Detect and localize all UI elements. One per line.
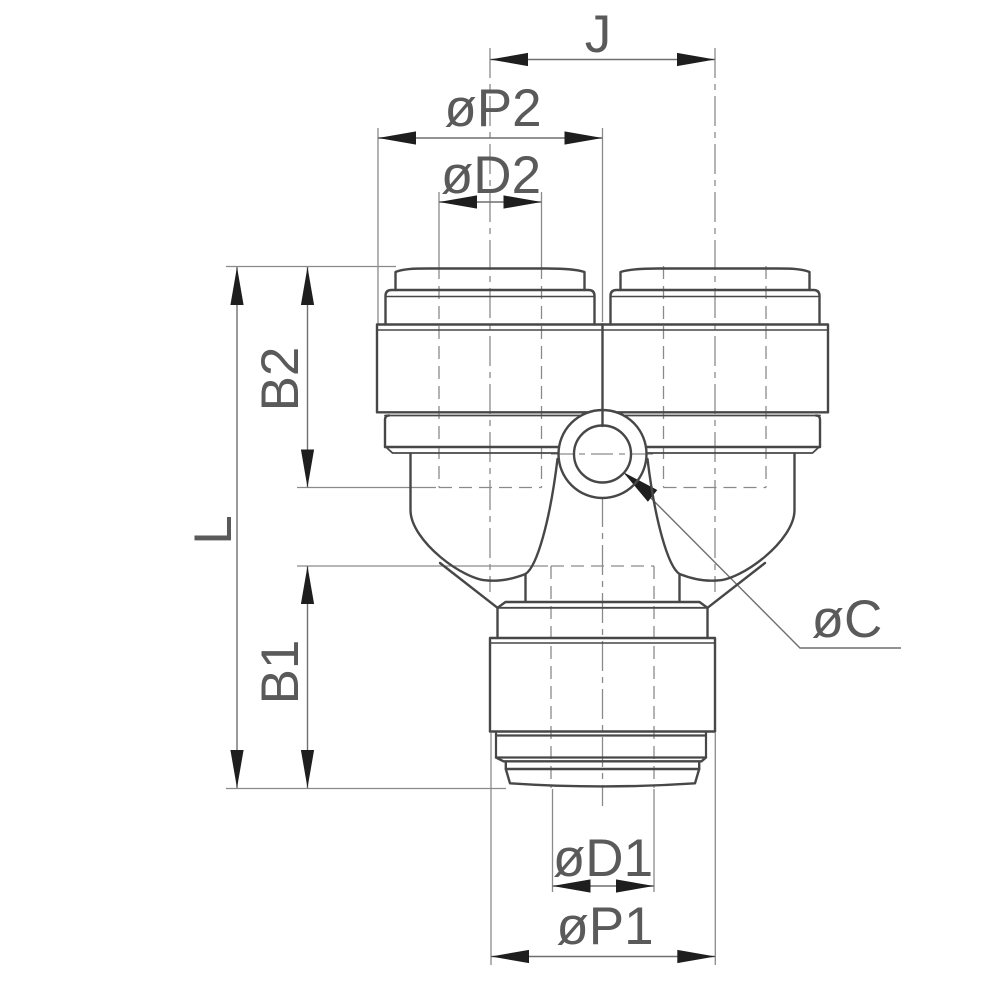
svg-text:øP2: øP2 (444, 79, 541, 138)
svg-text:J: J (585, 5, 612, 64)
svg-text:L: L (184, 515, 243, 544)
svg-text:B1: B1 (251, 640, 310, 705)
svg-text:øC: øC (812, 590, 883, 649)
svg-text:øP1: øP1 (556, 897, 653, 956)
svg-text:øD2: øD2 (441, 146, 541, 205)
svg-text:B2: B2 (251, 347, 310, 412)
svg-text:øD1: øD1 (553, 829, 653, 888)
